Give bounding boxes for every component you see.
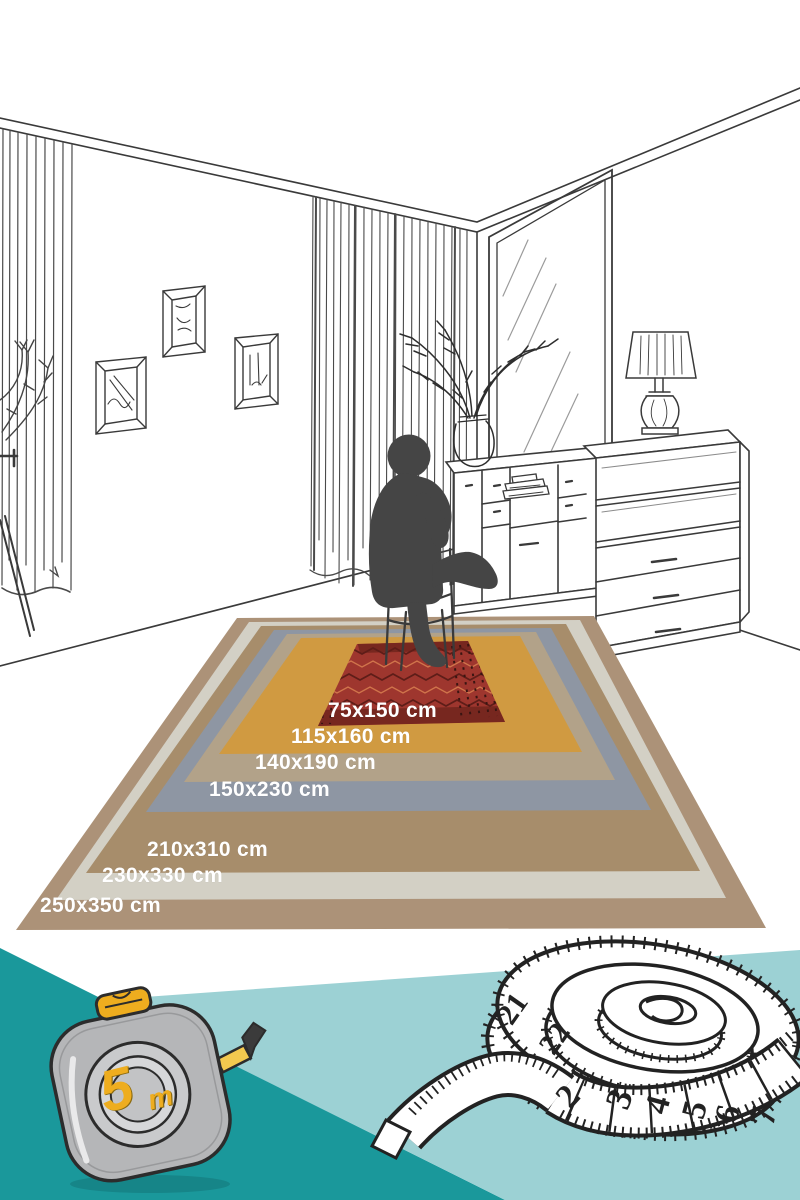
person-head — [388, 435, 431, 478]
scene-canvas — [0, 0, 800, 1200]
picture-frame-left — [96, 357, 146, 434]
sideboard — [446, 448, 598, 614]
rug-size-label-150x230: 150x230 cm — [209, 778, 330, 802]
left-curtain — [2, 129, 72, 595]
picture-frame-top — [163, 286, 205, 357]
picture-frame-right — [235, 334, 278, 409]
table-lamp — [626, 332, 696, 434]
ceiling-cornice — [0, 88, 800, 232]
rug-size-label-230x330: 230x330 cm — [102, 864, 223, 888]
rug-size-label-210x310: 210x310 cm — [147, 838, 268, 862]
rug-size-label-115x160: 115x160 cm — [291, 725, 411, 749]
rug-size-label-250x350: 250x350 cm — [40, 894, 161, 918]
rug-size-label-75x150: 75x150 cm — [328, 699, 437, 723]
dresser — [584, 430, 749, 658]
rug-size-label-140x190: 140x190 cm — [255, 751, 376, 775]
rug-size-guide-illustration: 75x150 cm 115x160 cm 140x190 cm 150x230 … — [0, 0, 800, 1200]
